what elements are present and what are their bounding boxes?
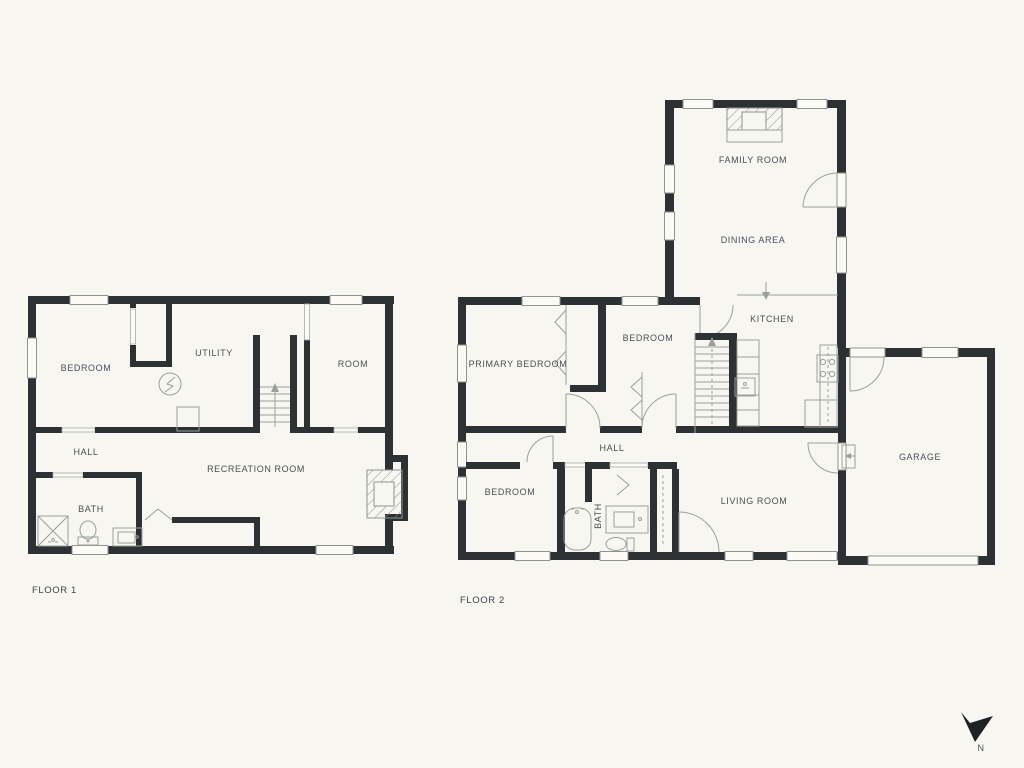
living-room-door bbox=[679, 512, 719, 552]
room-label-bedroom-f2b: BEDROOM bbox=[485, 487, 536, 497]
floor2-stairs bbox=[695, 333, 729, 433]
floor1-outer-walls bbox=[28, 296, 408, 554]
room-label-room: ROOM bbox=[338, 359, 368, 369]
dining-kitchen-divider bbox=[737, 282, 838, 300]
room-label-bedroom-f2a: BEDROOM bbox=[623, 333, 674, 343]
kitchen-counters bbox=[735, 340, 838, 427]
room-label-kitchen: KITCHEN bbox=[750, 314, 794, 324]
floor1-fireplace bbox=[367, 470, 402, 518]
compass-label: N bbox=[977, 743, 984, 753]
room-label-family-room: FAMILY ROOM bbox=[719, 155, 787, 165]
floor2-windows bbox=[458, 100, 979, 566]
bathtub-icon bbox=[564, 508, 591, 550]
room-label-utility: UTILITY bbox=[195, 348, 233, 358]
electrical-panel-icon bbox=[159, 373, 181, 395]
room-label-bath-f2: BATH bbox=[593, 503, 603, 529]
room-label-living-room: LIVING ROOM bbox=[721, 496, 788, 506]
family-room-door bbox=[803, 173, 846, 207]
room-label-hall-f2: HALL bbox=[600, 443, 625, 453]
kitchen-sink-icon bbox=[735, 378, 755, 396]
bath-door-fold bbox=[617, 475, 629, 495]
room-label-hall-f1: HALL bbox=[74, 447, 99, 457]
floorplan-canvas: BEDROOM UTILITY ROOM HALL RECREATION ROO… bbox=[0, 0, 1024, 768]
room-label-dining-area: DINING AREA bbox=[721, 235, 786, 245]
garage-door bbox=[868, 556, 978, 565]
family-room-fireplace bbox=[727, 108, 782, 142]
room-label-primary-bedroom: PRIMARY BEDROOM bbox=[469, 359, 568, 369]
floor1-bath-fixtures bbox=[38, 516, 142, 546]
floor1-stairs bbox=[260, 383, 290, 427]
primary-bedroom-closet bbox=[555, 305, 566, 385]
floor1-title: FLOOR 1 bbox=[32, 585, 77, 596]
bedroom-closet bbox=[631, 372, 642, 426]
room-label-bath-f1: BATH bbox=[78, 504, 104, 514]
room-label-bedroom-f1: BEDROOM bbox=[61, 363, 112, 373]
north-arrow-icon bbox=[948, 700, 1004, 756]
room-label-recreation-room: RECREATION ROOM bbox=[207, 464, 305, 474]
room-label-garage: GARAGE bbox=[899, 452, 941, 462]
floor1-plan bbox=[27, 291, 419, 565]
bath-sink-icon bbox=[606, 506, 648, 533]
toilet-icon bbox=[78, 521, 98, 545]
floor1-windows bbox=[28, 296, 363, 555]
wall-opening-marker bbox=[145, 509, 172, 520]
toilet2-icon bbox=[606, 538, 634, 552]
shower-icon bbox=[38, 516, 68, 546]
floor2-title: FLOOR 2 bbox=[460, 595, 505, 606]
